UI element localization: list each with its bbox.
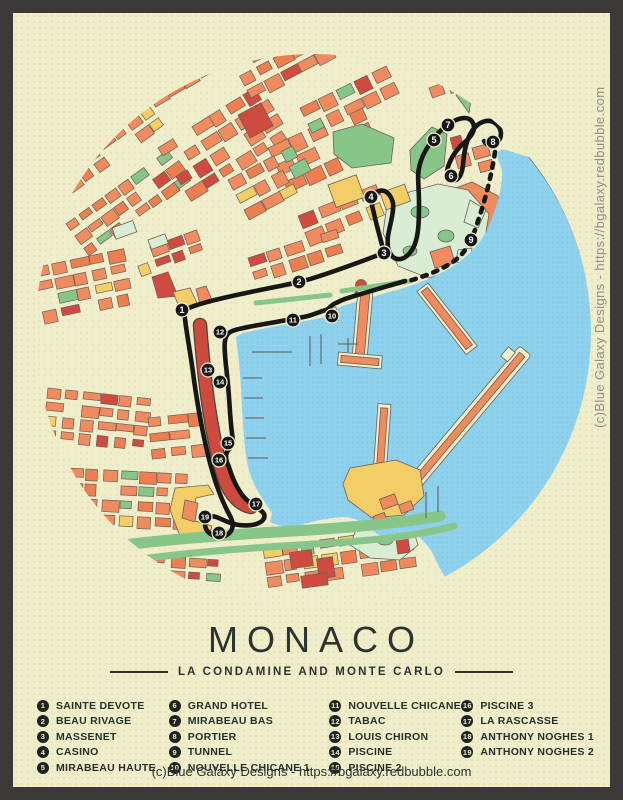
building bbox=[495, 43, 512, 59]
building bbox=[436, 45, 457, 62]
building bbox=[65, 390, 78, 400]
corner-marker-19: 19 bbox=[198, 510, 212, 524]
building bbox=[83, 392, 101, 401]
svg-text:18: 18 bbox=[215, 529, 223, 538]
legend-item-1: 1SAINTE DEVOTE bbox=[37, 698, 169, 714]
svg-text:9: 9 bbox=[468, 235, 473, 245]
legend-label: BEAU RIVAGE bbox=[56, 715, 131, 727]
building bbox=[117, 409, 129, 420]
building bbox=[101, 515, 115, 525]
corner-marker-2: 2 bbox=[292, 275, 306, 289]
building bbox=[138, 502, 153, 512]
building bbox=[117, 294, 130, 307]
building bbox=[489, 26, 508, 40]
corner-marker-13: 13 bbox=[201, 363, 215, 377]
copyright-side: (c)Blue Galaxy Designs - https://bgalaxy… bbox=[592, 28, 607, 428]
monaco-circuit-poster: 12345678910111213141516171819 MONACO LA … bbox=[0, 0, 623, 800]
subtitle-row: LA CONDAMINE AND MONTE CARLO bbox=[13, 666, 610, 678]
subtitle-left-dash bbox=[110, 671, 168, 673]
svg-text:15: 15 bbox=[224, 439, 232, 448]
legend-item-12: 12TABAC bbox=[329, 714, 461, 730]
legend-bullet-7: 7 bbox=[169, 715, 181, 727]
building bbox=[104, 114, 118, 128]
building bbox=[85, 469, 97, 481]
svg-text:17: 17 bbox=[252, 500, 260, 509]
building bbox=[418, 54, 432, 66]
svg-text:8: 8 bbox=[490, 137, 495, 147]
legend-item-8: 8PORTIER bbox=[169, 729, 330, 745]
legend-item-11: 11NOUVELLE CHICANE 2 bbox=[329, 698, 461, 714]
legend-bullet-2: 2 bbox=[37, 715, 49, 727]
building bbox=[307, 32, 328, 51]
building bbox=[299, 19, 316, 34]
building bbox=[459, 55, 477, 71]
building bbox=[85, 484, 97, 496]
building bbox=[68, 468, 84, 477]
legend-label: MIRABEAU BAS bbox=[188, 715, 273, 727]
building bbox=[267, 576, 282, 588]
legend-bullet-12: 12 bbox=[329, 715, 341, 727]
legend-item-4: 4CASINO bbox=[37, 745, 169, 761]
building bbox=[472, 32, 493, 49]
building bbox=[165, 43, 184, 59]
svg-text:19: 19 bbox=[201, 513, 209, 522]
corner-marker-18: 18 bbox=[212, 526, 226, 540]
building bbox=[83, 514, 98, 523]
legend-label: PISCINE 3 bbox=[480, 700, 533, 712]
building bbox=[206, 573, 220, 581]
corner-marker-7: 7 bbox=[441, 118, 455, 132]
legend-bullet-3: 3 bbox=[37, 731, 49, 743]
building bbox=[65, 513, 82, 526]
building bbox=[99, 408, 113, 417]
building bbox=[123, 79, 140, 94]
corner-marker-15: 15 bbox=[221, 436, 235, 450]
building bbox=[126, 84, 146, 102]
building bbox=[67, 483, 83, 496]
building bbox=[316, 9, 338, 29]
building bbox=[477, 49, 495, 66]
svg-text:5: 5 bbox=[431, 135, 436, 145]
building bbox=[173, 56, 194, 74]
building bbox=[63, 141, 81, 158]
legend-bullet-14: 14 bbox=[329, 746, 341, 758]
legend-label: LA RASCASSE bbox=[480, 715, 558, 727]
legend-bullet-16: 16 bbox=[461, 700, 473, 712]
legend-label: SAINTE DEVOTE bbox=[56, 700, 145, 712]
building bbox=[180, 36, 197, 52]
building bbox=[148, 417, 161, 427]
legend-label: NOUVELLE CHICANE 2 bbox=[348, 700, 470, 712]
building bbox=[121, 486, 137, 496]
building bbox=[207, 559, 218, 566]
legend-bullet-4: 4 bbox=[37, 746, 49, 758]
building bbox=[98, 421, 116, 431]
building bbox=[331, 39, 347, 53]
corner-marker-8: 8 bbox=[486, 135, 500, 149]
building bbox=[47, 388, 61, 400]
corner-marker-14: 14 bbox=[213, 375, 227, 389]
building bbox=[323, 26, 338, 39]
building bbox=[175, 474, 187, 484]
legend-item-2: 2BEAU RIVAGE bbox=[37, 714, 169, 730]
building bbox=[114, 437, 126, 448]
building bbox=[42, 430, 55, 442]
legend-label: GRAND HOTEL bbox=[188, 700, 268, 712]
building bbox=[441, 62, 457, 78]
building bbox=[513, 36, 531, 53]
building bbox=[81, 406, 99, 419]
legend-label: PISCINE bbox=[348, 746, 392, 758]
svg-text:12: 12 bbox=[216, 328, 224, 337]
building bbox=[483, 62, 504, 78]
building bbox=[118, 71, 136, 88]
building bbox=[340, 550, 357, 564]
building bbox=[54, 132, 67, 145]
svg-text:1: 1 bbox=[179, 305, 184, 315]
svg-text:10: 10 bbox=[328, 312, 336, 321]
building bbox=[500, 58, 516, 72]
poster-subtitle: LA CONDAMINE AND MONTE CARLO bbox=[178, 666, 445, 678]
corner-marker-6: 6 bbox=[444, 169, 458, 183]
building bbox=[78, 434, 90, 446]
building bbox=[507, 22, 521, 36]
building bbox=[76, 132, 93, 148]
legend-item-18: 18ANTHONY NOGHES 1 bbox=[461, 729, 610, 745]
legend-bullet-6: 6 bbox=[169, 700, 181, 712]
corner-marker-4: 4 bbox=[364, 190, 378, 204]
building bbox=[340, 17, 357, 34]
legend-label: ANTHONY NOGHES 2 bbox=[480, 746, 594, 758]
corner-marker-10: 10 bbox=[325, 309, 339, 323]
building bbox=[96, 435, 108, 447]
building bbox=[134, 63, 149, 76]
building bbox=[102, 500, 120, 512]
legend-item-19: 19ANTHONY NOGHES 2 bbox=[461, 745, 610, 761]
building bbox=[204, 41, 220, 57]
building bbox=[170, 430, 190, 440]
building bbox=[155, 518, 171, 527]
building bbox=[52, 261, 68, 275]
legend-bullet-18: 18 bbox=[461, 731, 473, 743]
building bbox=[71, 153, 89, 170]
legend-label: TABAC bbox=[348, 715, 385, 727]
legend-item-9: 9TUNNEL bbox=[169, 745, 330, 761]
building bbox=[101, 394, 119, 406]
building bbox=[150, 432, 170, 442]
monaco-circuit-map: 12345678910111213141516171819 bbox=[0, 0, 623, 800]
building bbox=[118, 103, 132, 116]
building bbox=[265, 560, 284, 575]
building bbox=[116, 423, 134, 432]
legend-bullet-1: 1 bbox=[37, 700, 49, 712]
corner-marker-9: 9 bbox=[464, 233, 478, 247]
svg-text:16: 16 bbox=[215, 456, 223, 465]
copyright-bottom: (c)Blue Galaxy Designs - https://bgalaxy… bbox=[13, 764, 610, 779]
building bbox=[62, 418, 74, 430]
title-block: MONACO LA CONDAMINE AND MONTE CARLO bbox=[13, 619, 610, 678]
building bbox=[157, 488, 168, 496]
legend-label: PORTIER bbox=[188, 731, 237, 743]
building bbox=[188, 49, 205, 65]
building bbox=[68, 118, 88, 136]
building bbox=[149, 54, 165, 69]
building bbox=[189, 558, 206, 568]
building bbox=[137, 517, 151, 529]
building bbox=[117, 553, 130, 562]
building bbox=[84, 499, 97, 509]
building bbox=[142, 76, 160, 93]
building bbox=[103, 470, 118, 482]
building bbox=[282, 28, 300, 43]
legend-label: ANTHONY NOGHES 1 bbox=[480, 731, 594, 743]
building bbox=[61, 432, 74, 440]
building bbox=[188, 572, 199, 579]
legend-item-6: 6GRAND HOTEL bbox=[169, 698, 330, 714]
building bbox=[40, 142, 54, 155]
building bbox=[98, 297, 113, 310]
legend-bullet-9: 9 bbox=[169, 746, 181, 758]
building bbox=[81, 109, 99, 126]
building bbox=[119, 396, 132, 408]
legend-item-16: 16PISCINE 3 bbox=[461, 698, 610, 714]
svg-text:4: 4 bbox=[368, 192, 373, 202]
building bbox=[170, 571, 185, 581]
legend-label: CASINO bbox=[56, 746, 99, 758]
corner-marker-3: 3 bbox=[377, 246, 391, 260]
building bbox=[92, 268, 107, 281]
building bbox=[157, 473, 171, 484]
legend-bullet-8: 8 bbox=[169, 731, 181, 743]
building bbox=[116, 567, 134, 578]
building bbox=[58, 165, 74, 181]
building bbox=[333, 2, 349, 17]
legend-label: MASSENET bbox=[56, 731, 117, 743]
building bbox=[132, 439, 143, 447]
building bbox=[361, 562, 379, 576]
page-title: MONACO bbox=[13, 619, 610, 661]
legend-item-7: 7MIRABEAU BAS bbox=[169, 714, 330, 730]
legend-item-17: 17LA RASCASSE bbox=[461, 714, 610, 730]
building bbox=[518, 49, 538, 63]
building bbox=[46, 402, 64, 412]
svg-text:13: 13 bbox=[204, 366, 212, 375]
svg-text:2: 2 bbox=[296, 277, 301, 287]
building bbox=[465, 70, 483, 86]
corner-marker-1: 1 bbox=[175, 303, 189, 317]
building bbox=[42, 309, 58, 324]
svg-text:6: 6 bbox=[448, 171, 453, 181]
building bbox=[44, 416, 56, 427]
subtitle-right-dash bbox=[455, 671, 513, 673]
legend-bullet-11: 11 bbox=[329, 700, 341, 712]
building bbox=[196, 25, 214, 40]
building bbox=[122, 471, 139, 480]
building bbox=[157, 69, 172, 84]
building bbox=[168, 414, 188, 424]
legend-item-13: 13LOUIS CHIRON bbox=[329, 729, 461, 745]
corner-marker-5: 5 bbox=[427, 133, 441, 147]
building bbox=[156, 503, 170, 515]
building bbox=[171, 446, 186, 455]
legend-label: TUNNEL bbox=[188, 746, 232, 758]
building bbox=[120, 501, 132, 509]
building bbox=[135, 554, 148, 562]
building bbox=[454, 39, 475, 58]
building bbox=[139, 472, 157, 485]
building bbox=[109, 92, 123, 106]
building bbox=[49, 154, 61, 165]
building bbox=[286, 573, 299, 582]
building bbox=[134, 568, 145, 577]
legend-item-3: 3MASSENET bbox=[37, 729, 169, 745]
corner-marker-11: 11 bbox=[286, 313, 300, 327]
building bbox=[66, 498, 83, 506]
building bbox=[266, 38, 284, 54]
building bbox=[348, 30, 366, 47]
building bbox=[95, 99, 115, 118]
svg-text:7: 7 bbox=[445, 120, 450, 130]
corner-marker-17: 17 bbox=[249, 497, 263, 511]
building bbox=[80, 420, 94, 433]
legend-bullet-19: 19 bbox=[461, 746, 473, 758]
svg-text:3: 3 bbox=[381, 248, 386, 258]
legend-label: LOUIS CHIRON bbox=[348, 731, 428, 743]
building bbox=[90, 123, 104, 136]
legend-bullet-13: 13 bbox=[329, 731, 341, 743]
building bbox=[134, 425, 148, 436]
building bbox=[380, 560, 397, 572]
building bbox=[139, 487, 154, 497]
corner-marker-16: 16 bbox=[212, 453, 226, 467]
svg-text:11: 11 bbox=[289, 316, 297, 325]
building bbox=[152, 569, 163, 580]
building bbox=[73, 272, 87, 286]
building bbox=[151, 448, 165, 459]
corner-marker-12: 12 bbox=[213, 325, 227, 339]
legend-item-14: 14PISCINE bbox=[329, 745, 461, 761]
building bbox=[76, 287, 90, 301]
building bbox=[119, 516, 133, 527]
svg-text:14: 14 bbox=[216, 378, 225, 387]
building bbox=[212, 55, 227, 69]
legend-bullet-17: 17 bbox=[461, 715, 473, 727]
building bbox=[137, 397, 151, 405]
